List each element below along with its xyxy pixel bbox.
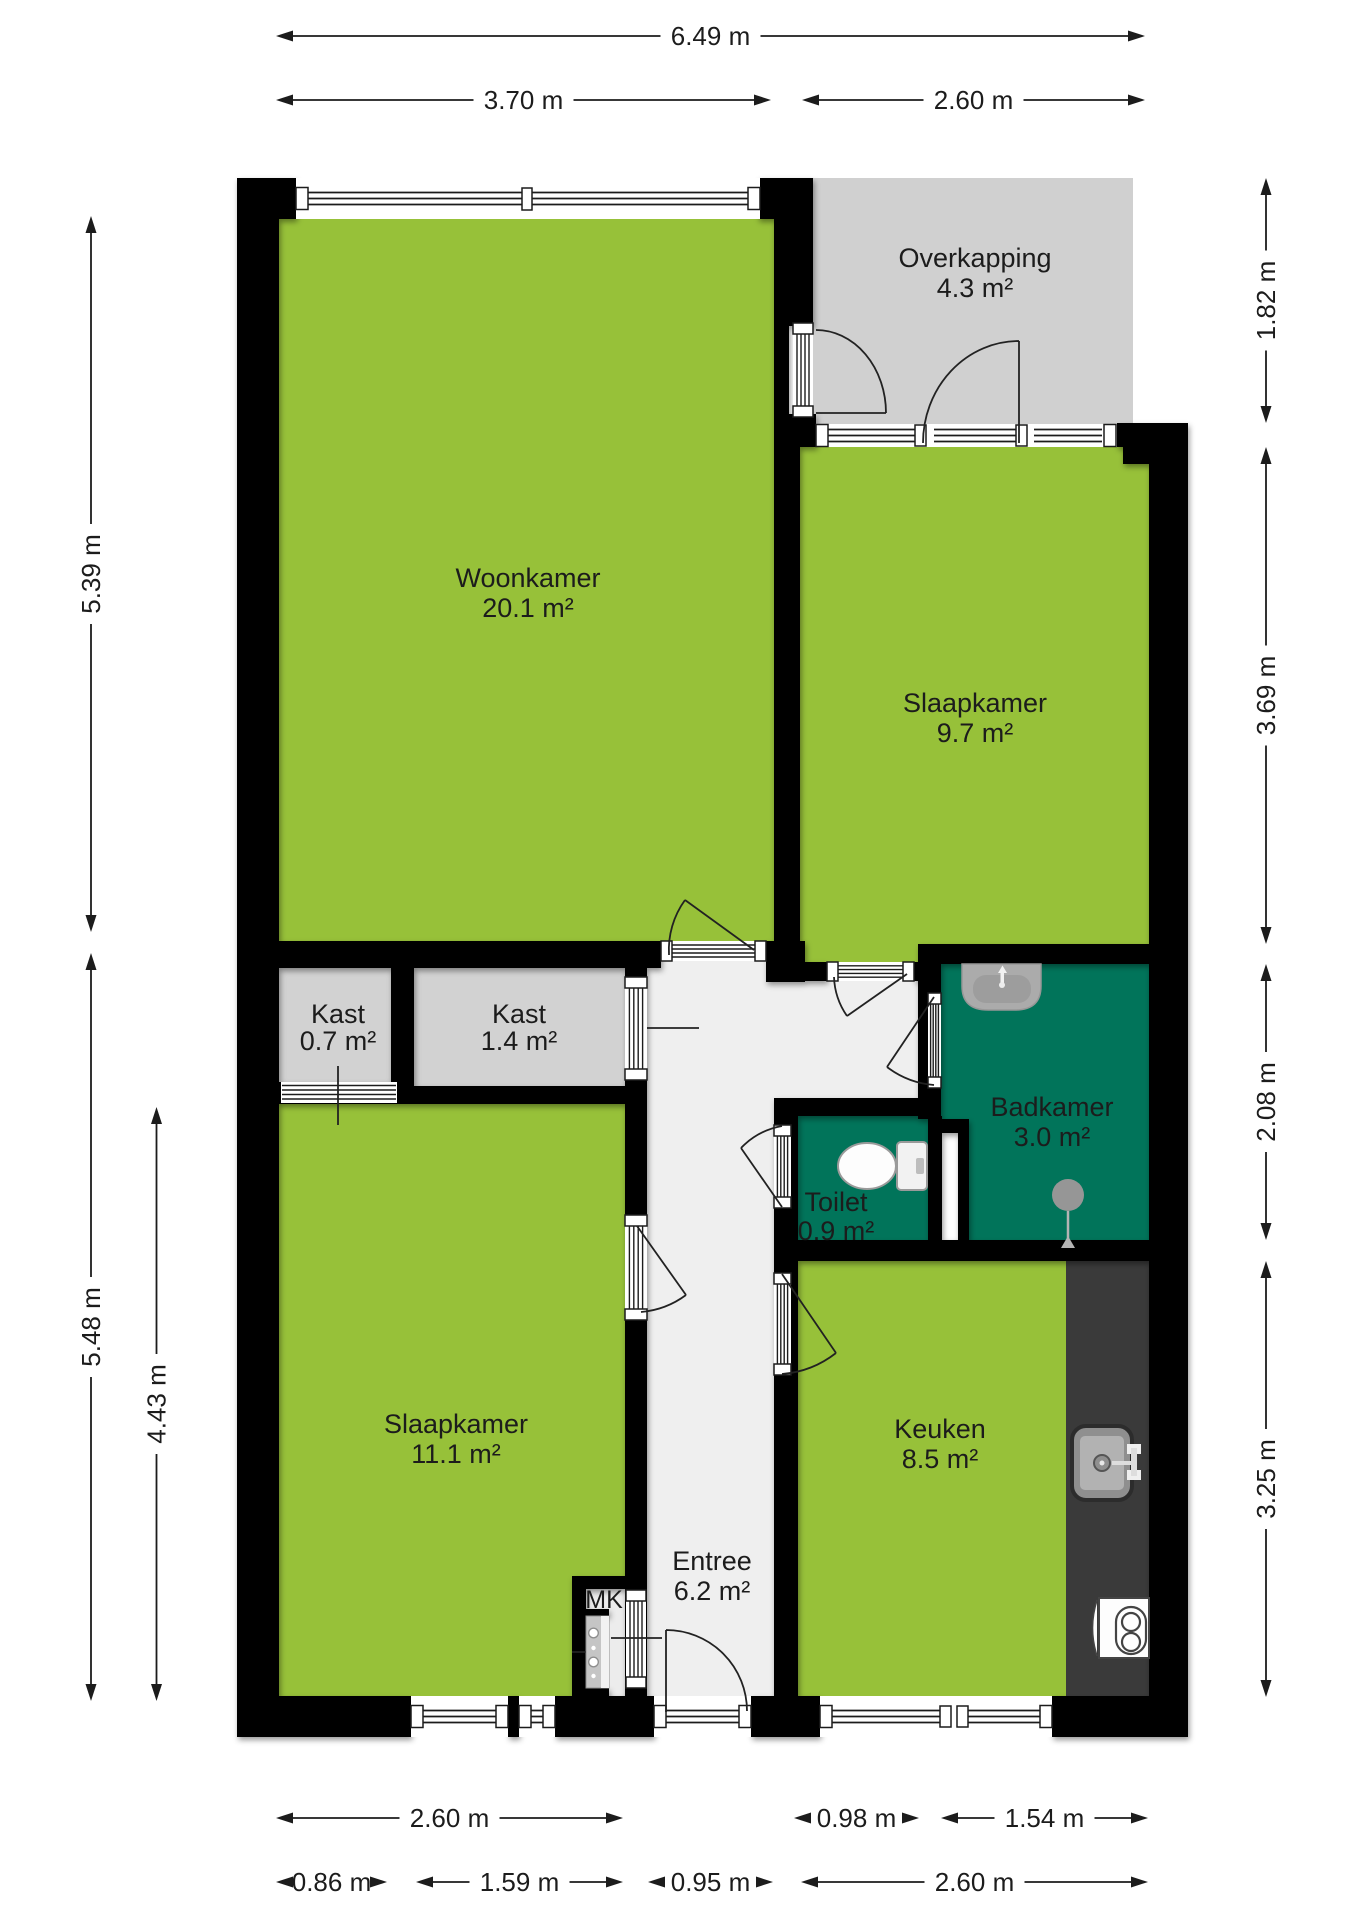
svg-text:2.60 m: 2.60 m bbox=[410, 1803, 490, 1833]
svg-text:Slaapkamer: Slaapkamer bbox=[903, 688, 1047, 718]
svg-text:5.39 m: 5.39 m bbox=[76, 534, 106, 614]
svg-text:0.9 m²: 0.9 m² bbox=[798, 1216, 875, 1246]
svg-text:Keuken: Keuken bbox=[894, 1414, 986, 1444]
svg-text:9.7 m²: 9.7 m² bbox=[937, 718, 1014, 748]
svg-text:6.49 m: 6.49 m bbox=[671, 21, 751, 51]
svg-text:0.86 m: 0.86 m bbox=[292, 1867, 372, 1897]
svg-text:0.98 m: 0.98 m bbox=[817, 1803, 897, 1833]
svg-text:3.25 m: 3.25 m bbox=[1251, 1439, 1281, 1519]
svg-text:Slaapkamer: Slaapkamer bbox=[384, 1409, 528, 1439]
svg-text:20.1 m²: 20.1 m² bbox=[482, 593, 574, 623]
svg-text:Kast: Kast bbox=[492, 999, 547, 1029]
svg-text:2.60 m: 2.60 m bbox=[934, 85, 1014, 115]
svg-text:3.70 m: 3.70 m bbox=[484, 85, 564, 115]
svg-text:1.54 m: 1.54 m bbox=[1005, 1803, 1085, 1833]
svg-text:Entree: Entree bbox=[672, 1546, 752, 1576]
svg-text:3.0 m²: 3.0 m² bbox=[1014, 1122, 1091, 1152]
svg-text:MK: MK bbox=[585, 1586, 623, 1614]
svg-text:1.82 m: 1.82 m bbox=[1251, 261, 1281, 341]
svg-text:2.08 m: 2.08 m bbox=[1251, 1062, 1281, 1142]
svg-text:2.60 m: 2.60 m bbox=[935, 1867, 1015, 1897]
svg-text:4.43 m: 4.43 m bbox=[142, 1364, 172, 1444]
svg-text:4.3 m²: 4.3 m² bbox=[937, 273, 1014, 303]
svg-text:0.95 m: 0.95 m bbox=[671, 1867, 751, 1897]
svg-text:Woonkamer: Woonkamer bbox=[455, 563, 600, 593]
svg-text:5.48 m: 5.48 m bbox=[76, 1287, 106, 1367]
svg-text:Badkamer: Badkamer bbox=[990, 1092, 1113, 1122]
svg-text:Kast: Kast bbox=[311, 999, 366, 1029]
svg-text:6.2 m²: 6.2 m² bbox=[674, 1576, 751, 1606]
svg-text:3.69 m: 3.69 m bbox=[1251, 656, 1281, 736]
svg-text:Overkapping: Overkapping bbox=[898, 243, 1051, 273]
svg-text:11.1 m²: 11.1 m² bbox=[411, 1439, 501, 1469]
svg-text:8.5 m²: 8.5 m² bbox=[902, 1444, 979, 1474]
svg-text:0.7 m²: 0.7 m² bbox=[300, 1026, 377, 1056]
svg-text:1.59 m: 1.59 m bbox=[480, 1867, 560, 1897]
svg-text:1.4 m²: 1.4 m² bbox=[481, 1026, 558, 1056]
svg-text:Toilet: Toilet bbox=[804, 1187, 868, 1217]
